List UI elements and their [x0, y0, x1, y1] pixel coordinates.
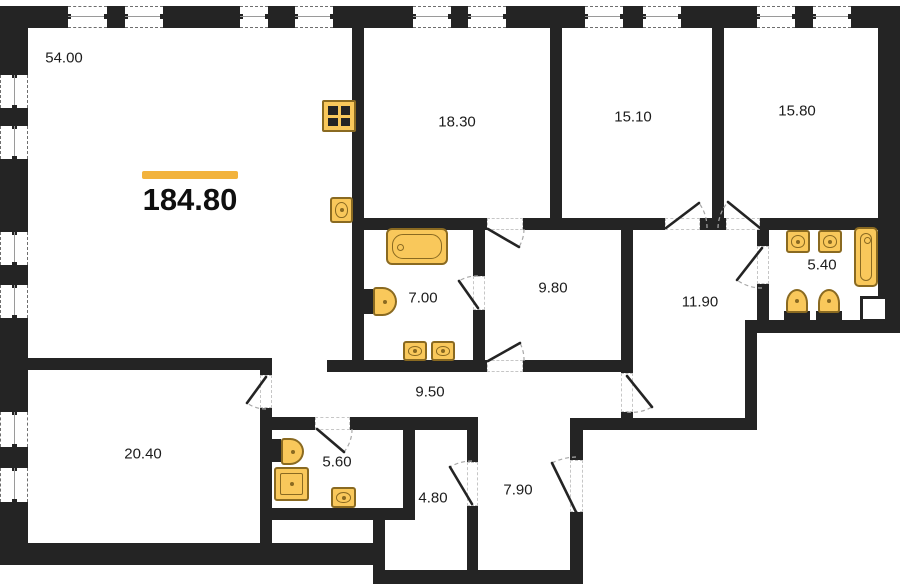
toilet-tank	[364, 289, 373, 314]
window	[0, 75, 28, 108]
room-area-label: 7.00	[408, 290, 437, 307]
room-area-label: 18.30	[438, 114, 476, 131]
room-area-label: 15.10	[614, 109, 652, 126]
window	[295, 6, 333, 28]
doorway-opening	[665, 218, 700, 230]
window	[468, 6, 506, 28]
window	[240, 6, 268, 28]
washbasin-icon	[431, 341, 455, 361]
toilet-tank	[272, 439, 281, 462]
window	[0, 285, 28, 318]
wall	[712, 28, 724, 230]
doorway-opening	[726, 218, 760, 230]
room-area-label: 5.60	[322, 454, 351, 471]
window	[585, 6, 623, 28]
window	[0, 232, 28, 265]
window	[68, 6, 107, 28]
window	[813, 6, 851, 28]
wall	[28, 358, 268, 370]
washbasin-icon	[403, 341, 427, 361]
total-area-label: 184.80	[138, 182, 242, 218]
doorway-opening	[487, 218, 523, 230]
room-area-label: 9.50	[415, 384, 444, 401]
doorway-opening	[570, 460, 583, 512]
toilet-icon	[786, 289, 808, 313]
toilet-icon	[373, 287, 397, 316]
wall	[272, 508, 415, 520]
washbasin-icon	[331, 487, 356, 508]
room-area-label: 54.00	[45, 50, 83, 67]
door-swing	[317, 429, 352, 452]
room-area-label: 9.80	[538, 280, 567, 297]
washbasin-icon	[786, 230, 810, 253]
total-area-underline	[142, 171, 238, 179]
floor-plan: 184.80 54.0018.3015.1015.807.009.8011.90…	[0, 0, 900, 584]
window	[0, 412, 28, 447]
kitchen-sink-icon	[330, 197, 353, 223]
wall	[550, 28, 562, 230]
wall	[327, 360, 621, 372]
doorway-opening	[487, 360, 523, 372]
room-area-label: 11.90	[682, 294, 718, 311]
room-area-label: 20.40	[124, 446, 162, 463]
room-area-label: 4.80	[418, 490, 447, 507]
toilet-icon	[281, 438, 304, 465]
window	[0, 126, 28, 159]
doorway-opening	[260, 375, 272, 408]
wall	[0, 543, 385, 565]
bathtub-icon	[386, 228, 448, 265]
washbasin-icon	[818, 230, 842, 253]
doorway-opening	[757, 246, 769, 284]
doorway-opening	[621, 373, 633, 412]
window	[643, 6, 681, 28]
wall	[403, 417, 415, 520]
wall	[352, 28, 364, 368]
shaft-niche	[860, 296, 888, 322]
window	[0, 468, 28, 502]
window	[125, 6, 163, 28]
doorway-opening	[467, 462, 478, 506]
door-swing	[488, 343, 524, 361]
room-area-label: 7.90	[503, 482, 532, 499]
wall	[570, 418, 757, 430]
door-swing	[488, 229, 524, 247]
shower-tray-icon	[274, 467, 309, 501]
wall	[373, 570, 583, 584]
gas-stove-icon	[322, 100, 356, 132]
doorway-opening	[315, 417, 350, 430]
wall	[878, 6, 900, 333]
window	[757, 6, 795, 28]
bidet-icon	[818, 289, 840, 313]
wall	[268, 417, 478, 430]
room-area-label: 15.80	[778, 103, 816, 120]
bathtub-icon	[854, 227, 878, 287]
doorway-opening	[473, 276, 485, 310]
window	[413, 6, 451, 28]
wall	[745, 333, 757, 430]
room-area-label: 5.40	[807, 257, 836, 274]
